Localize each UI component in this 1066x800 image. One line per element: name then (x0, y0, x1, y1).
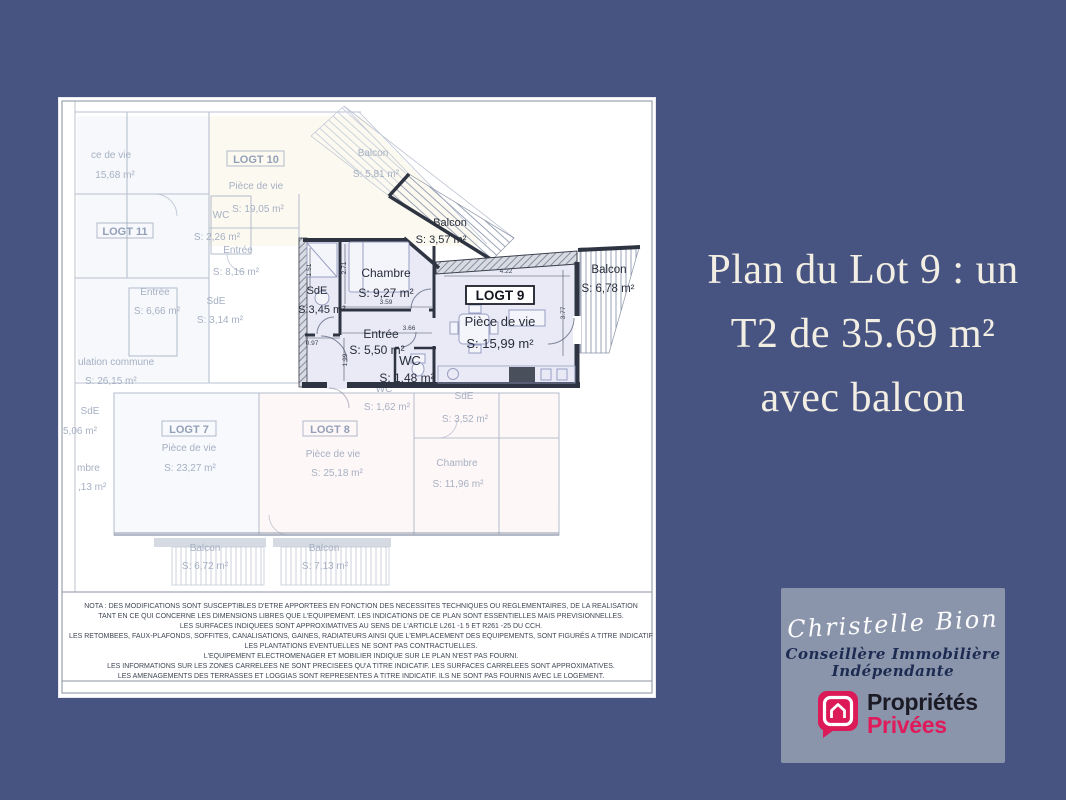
room-area: S:3,45 m² (298, 304, 346, 316)
faded-balconies-bottom (114, 532, 559, 585)
room-label: WC (213, 210, 230, 221)
balcony-label: Balcon (190, 543, 221, 554)
brand-logo: Propriétés Privées (817, 690, 1005, 738)
unit-label: LOGT 9 (476, 288, 525, 303)
dimension: 4.22 (500, 268, 513, 275)
nota-line: TANT EN CE QUI CONCERNE LES DIMENSIONS L… (98, 613, 624, 620)
balcony-label: Balcon (358, 148, 389, 159)
room-label: Entrée (140, 287, 170, 298)
balcony-area: S: 3,57 m² (416, 234, 467, 246)
nota-line: LES AMENAGEMENTS DES TERRASSES ET LOGGIA… (118, 673, 604, 680)
room-label: LOGT 8 (310, 424, 350, 436)
room-area: S: 26,15 m² (85, 376, 137, 387)
headline-line1: Plan du Lot 9 : un (663, 238, 1063, 302)
room-label: LOGT 7 (169, 424, 209, 436)
brand-name-bottom: Privées (867, 714, 978, 737)
room-label: SdE (207, 296, 226, 307)
room-area: S: 6,66 m² (134, 306, 181, 317)
nota-line: LES PLANTATIONS EVENTUELLES NE SONT PAS … (245, 643, 478, 650)
room-area: S: 8,16 m² (213, 267, 260, 278)
room-label: WC (399, 353, 421, 368)
agent-role: Conseillère Immobilière Indépendante (781, 646, 1005, 680)
room-area: ,13 m² (78, 482, 107, 493)
room-area: S: 11,96 m² (433, 479, 485, 490)
room-label: Entrée (363, 327, 399, 341)
dimension: 3.77 (560, 306, 567, 319)
agent-role-line2: Indépendante (781, 663, 1005, 680)
room-label: SdE (455, 391, 474, 402)
room-area: S: 23,27 m² (164, 463, 216, 474)
floor-plan: LOGT 10 Pièce de vie S: 19,05 m² ce de v… (59, 98, 655, 697)
room-area: 5,06 m² (63, 426, 98, 437)
room-label: SdE (307, 285, 328, 297)
room-label: Chambre (361, 266, 411, 280)
floor-plan-sheet: LOGT 10 Pièce de vie S: 19,05 m² ce de v… (59, 98, 655, 697)
proprietes-privees-logo-icon (817, 690, 859, 738)
room-area: S: 25,18 m² (311, 468, 363, 479)
room-label: Entrée (223, 245, 253, 256)
nota-line: NOTA : DES MODIFICATIONS SONT SUSCEPTIBL… (84, 603, 638, 610)
room-area: 15,68 m² (95, 170, 135, 181)
room-area: S: 5,50 m² (349, 343, 404, 357)
nota-line: L'EQUIPEMENT ELECTROMENAGER ET MOBILIER … (204, 653, 519, 660)
balcony-area: S: 5,81 m² (353, 169, 400, 180)
room-area: S: 1,48 m² (379, 371, 434, 385)
room-area: S: 3,14 m² (197, 315, 244, 326)
room-area: S: 3,52 m² (442, 414, 489, 425)
headline: Plan du Lot 9 : un T2 de 35.69 m² avec b… (663, 238, 1063, 430)
balcony-label: Balcon (309, 543, 340, 554)
nota-line: LES RETOMBEES, FAUX-PLAFONDS, SOFFITES, … (69, 631, 653, 640)
dimension: 0.97 (306, 340, 319, 347)
dimension: 3.59 (380, 299, 393, 306)
dimension: 2.71 (341, 261, 348, 274)
room-label: ulation commune (78, 357, 155, 368)
room-label: Pièce de vie (162, 443, 217, 454)
room-label: Pièce de vie (306, 449, 361, 460)
dimension: 1.99 (342, 353, 349, 366)
room-area: S: 9,27 m² (358, 286, 413, 300)
room-label: Chambre (436, 458, 478, 469)
room-label: mbre (77, 463, 100, 474)
room-area: S: 2,26 m² (194, 232, 241, 243)
nota-block: NOTA : DES MODIFICATIONS SONT SUSCEPTIBL… (69, 603, 653, 680)
agent-signature: Christelle Bion (780, 604, 1005, 644)
agent-role-line1: Conseillère Immobilière (781, 646, 1005, 663)
brand-name-top: Propriétés (867, 691, 978, 714)
headline-line3: avec balcon (663, 366, 1063, 430)
room-area: S: 19,05 m² (232, 204, 284, 215)
room-label: ce de vie (91, 150, 131, 161)
dimension: 1.51 (306, 263, 313, 276)
brand-text: Propriétés Privées (867, 691, 978, 737)
nota-line: LES INFORMATIONS SUR LES ZONES CARRELEES… (107, 663, 615, 670)
room-label: Pièce de vie (229, 181, 284, 192)
room-label: SdE (81, 406, 100, 417)
dimension: 3.66 (403, 325, 416, 332)
room-area: S: 15,99 m² (466, 336, 534, 351)
balcony-area: S: 6,72 m² (182, 561, 229, 572)
post-background: LOGT 10 Pièce de vie S: 19,05 m² ce de v… (0, 0, 1066, 800)
agent-card: Christelle Bion Conseillère Immobilière … (781, 588, 1005, 763)
nota-line: LES SURFACES INDIQUEES SONT APPROXIMATIV… (180, 623, 542, 630)
balcony-label: Balcon (591, 264, 626, 276)
stove (509, 367, 535, 382)
balcony-area: S: 7,13 m² (302, 561, 349, 572)
balcony-area: S: 6,78 m² (581, 283, 634, 295)
room-label: LOGT 10 (233, 154, 279, 166)
headline-line2: T2 de 35.69 m² (663, 302, 1063, 366)
room-area: S: 1,62 m² (364, 402, 411, 413)
room-label: LOGT 11 (102, 226, 147, 238)
balcony-label: Balcon (433, 217, 467, 229)
room-label: Pièce de vie (465, 314, 536, 329)
